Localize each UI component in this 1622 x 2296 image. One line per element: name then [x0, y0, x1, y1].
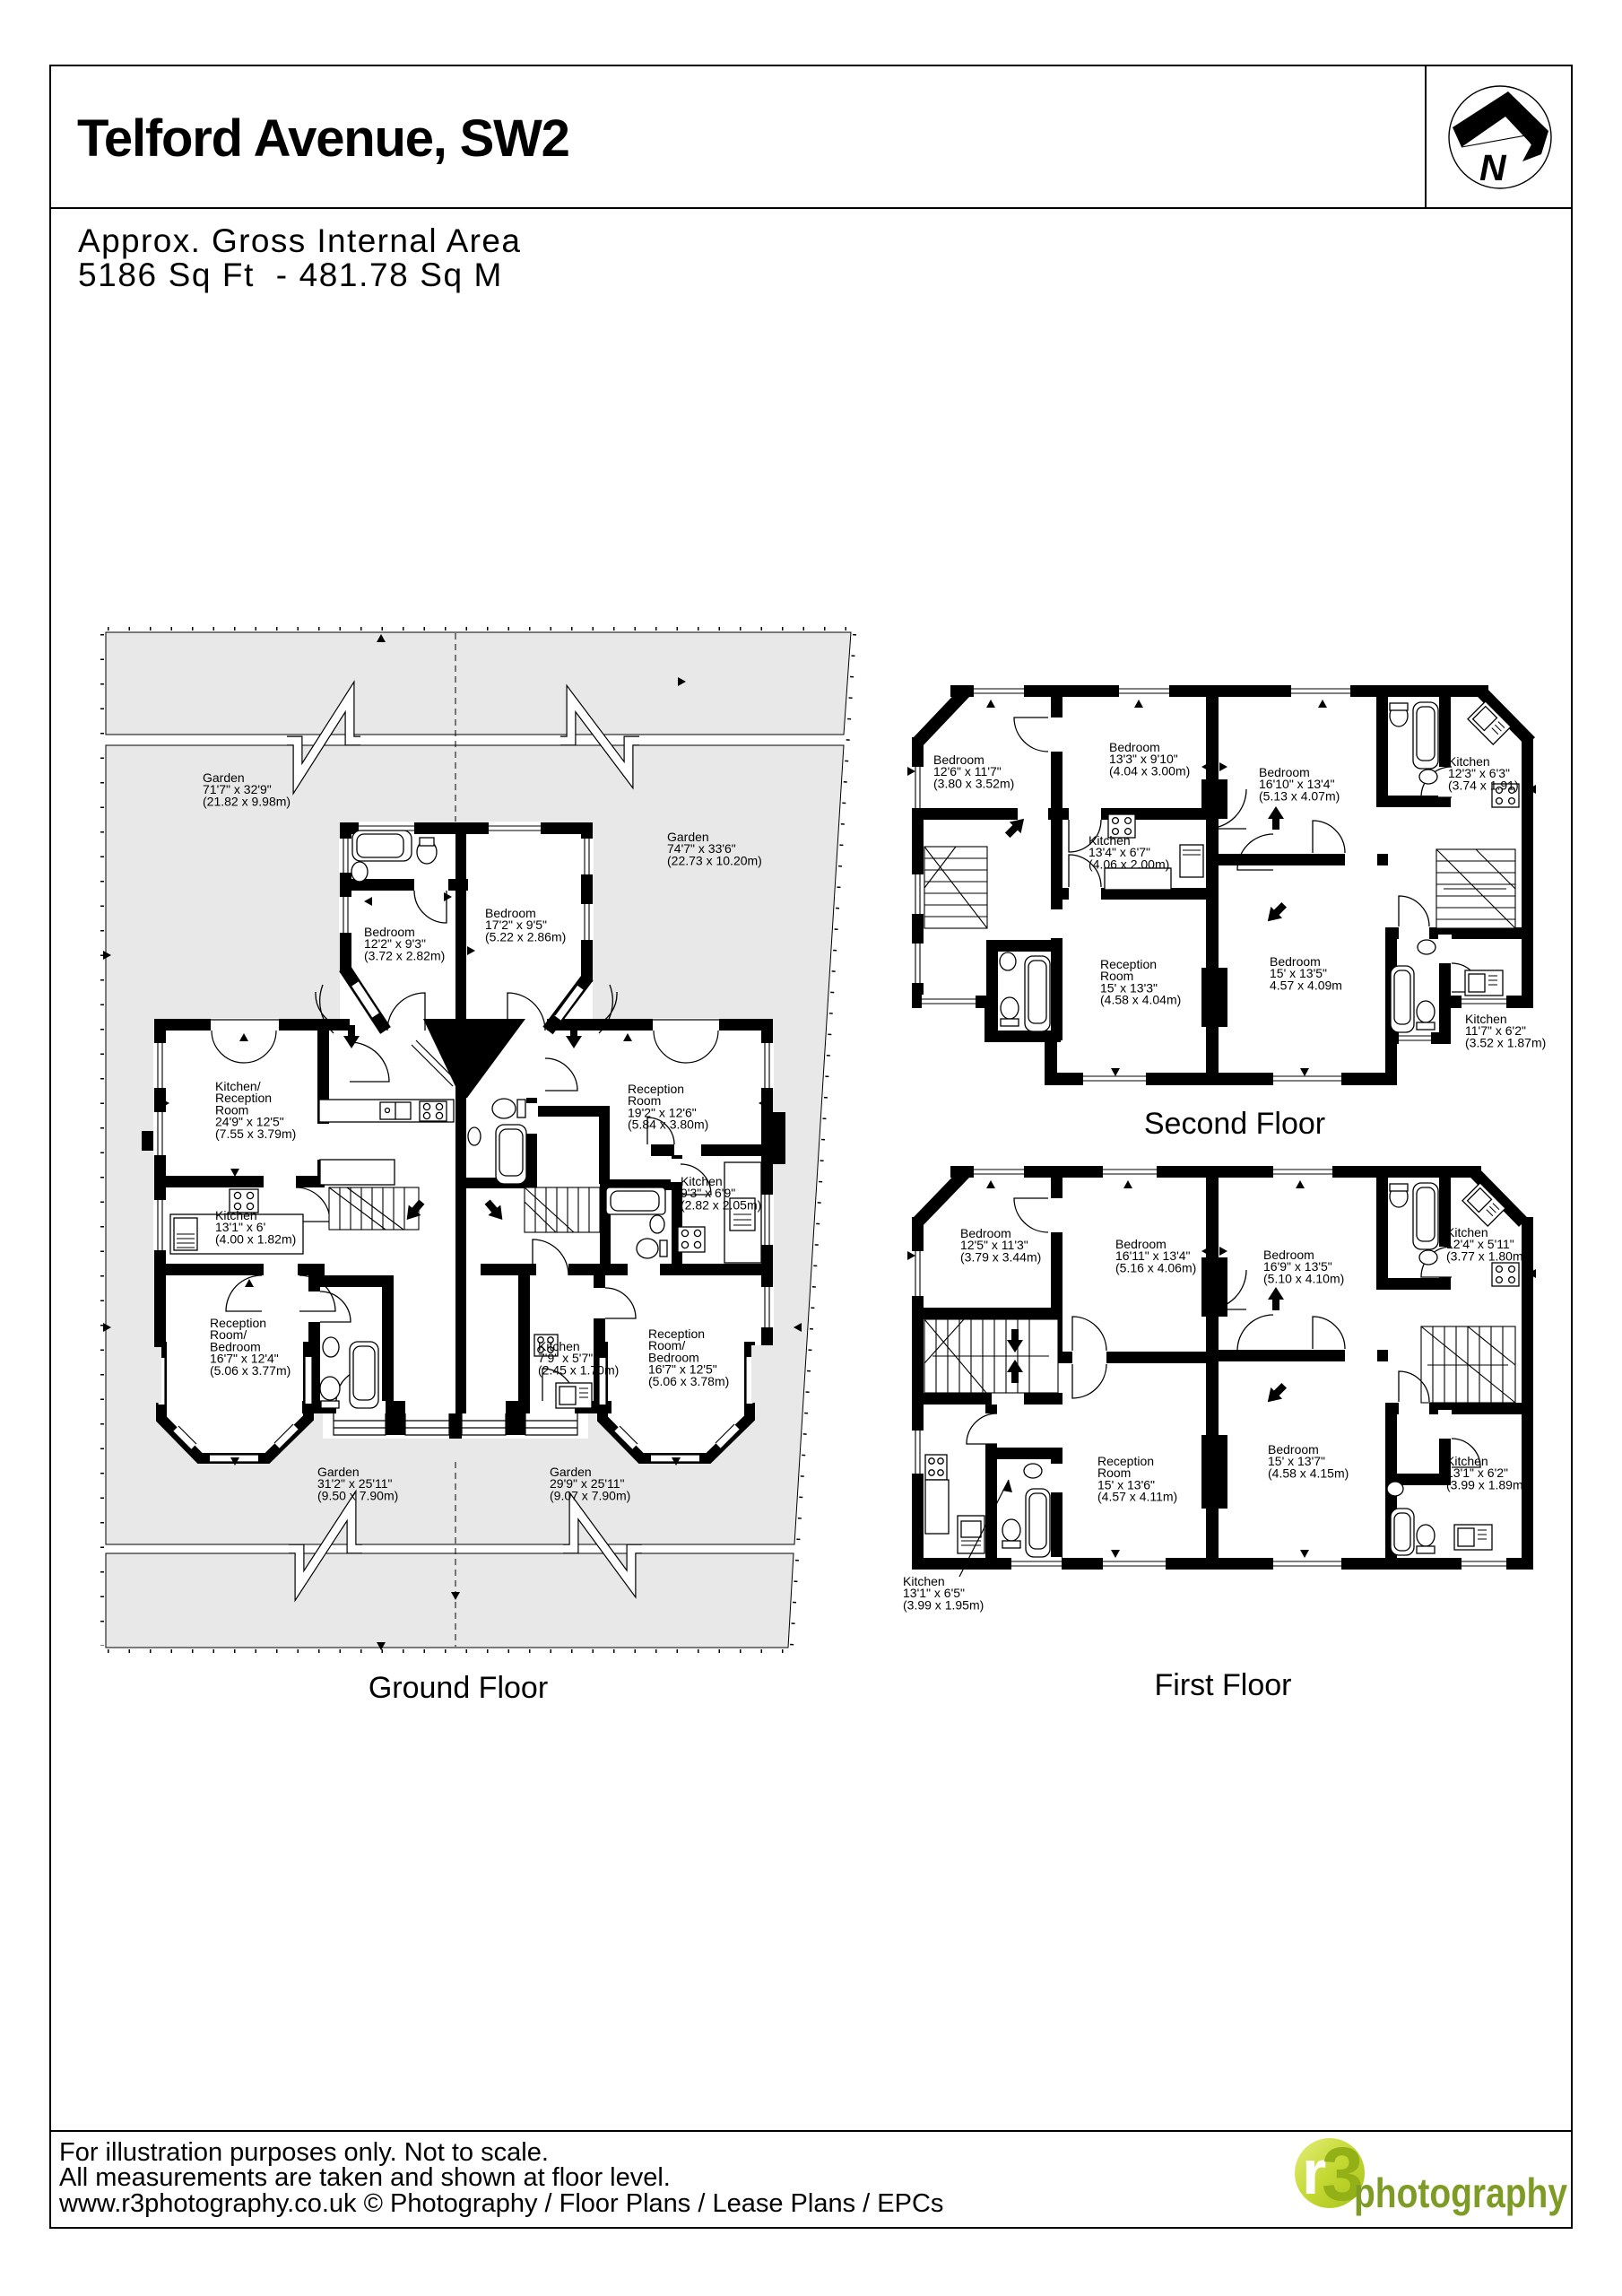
svg-text:Kitchen11'7" x 6'2"(3.52 x 1.8: Kitchen11'7" x 6'2"(3.52 x 1.87m) [1465, 1012, 1546, 1049]
svg-text:Telford Avenue, SW2: Telford Avenue, SW2 [77, 109, 569, 168]
svg-text:Ground Floor: Ground Floor [369, 1671, 548, 1705]
svg-text:N: N [1479, 147, 1507, 188]
svg-text:photography: photography [1354, 2170, 1567, 2216]
svg-text:5186 Sq Ft - 481.78 Sq M: 5186 Sq Ft - 481.78 Sq M [78, 257, 503, 293]
svg-text:First Floor: First Floor [1155, 1668, 1292, 1702]
svg-text:Approx. Gross Internal Area: Approx. Gross Internal Area [78, 222, 521, 259]
svg-text:www.r3photography.co.uk © Phot: www.r3photography.co.uk © Photography / … [58, 2189, 943, 2218]
svg-text:Second Floor: Second Floor [1144, 1107, 1325, 1141]
svg-text:Kitchen13'1" x 6'5"(3.99 x 1.9: Kitchen13'1" x 6'5"(3.99 x 1.95m) [903, 1574, 984, 1612]
svg-text:All measurements are taken and: All measurements are taken and shown at … [59, 2163, 671, 2192]
